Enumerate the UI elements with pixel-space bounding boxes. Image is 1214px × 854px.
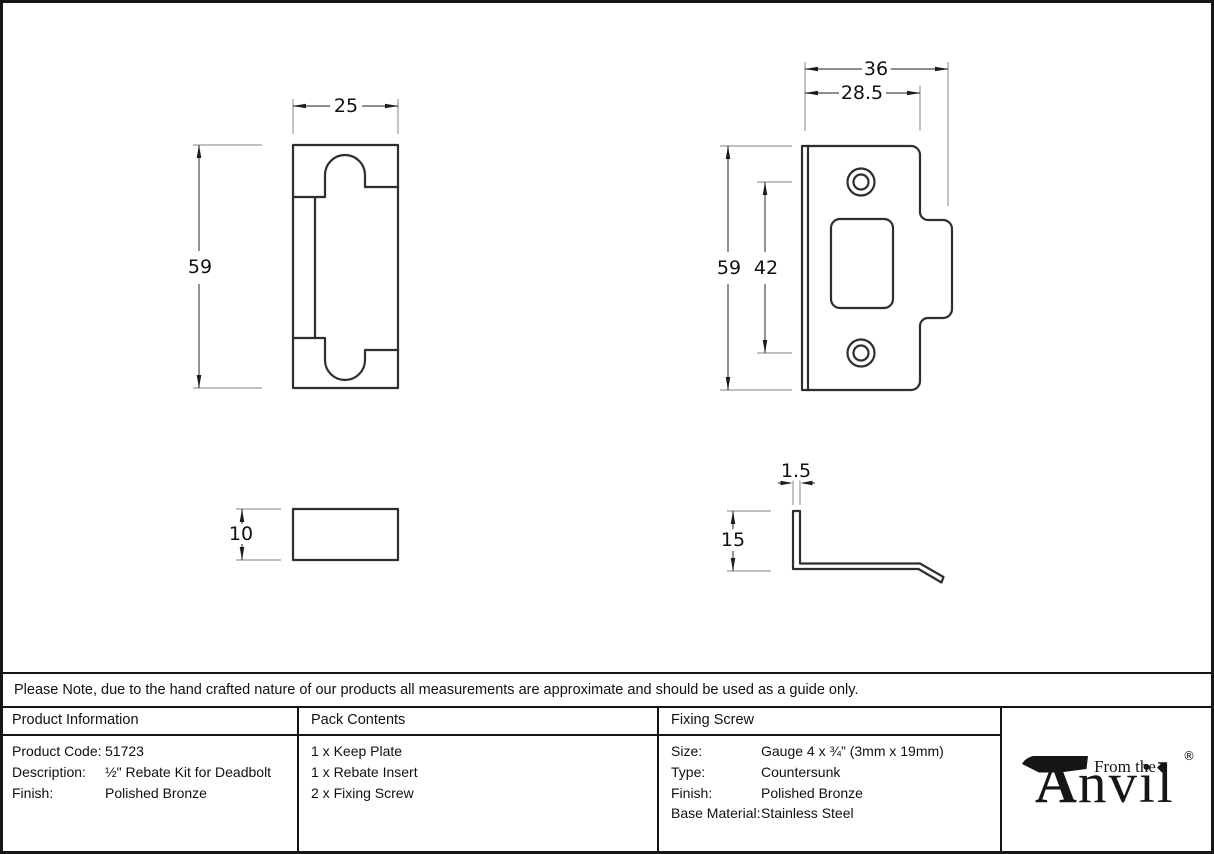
row-label: Description: xyxy=(12,762,105,783)
screw-hole-top-outer xyxy=(848,169,875,196)
arrowhead xyxy=(731,558,736,571)
spec-sheet-page: 25 59 xyxy=(0,0,1214,854)
row-value: Stainless Steel xyxy=(761,803,854,824)
dim-label-lip-thickness: 1.5 xyxy=(781,460,811,482)
product-information-body: Product Code: 51723 Description: ½" Reba… xyxy=(0,736,297,803)
insert-side-outline xyxy=(293,509,398,560)
dimension-plate-width: 28.5 xyxy=(805,82,920,131)
table-row: Description: ½" Rebate Kit for Deadbolt xyxy=(12,762,291,783)
product-information-header: Product Information xyxy=(0,708,297,736)
arrowhead xyxy=(726,146,731,159)
row-label: Finish: xyxy=(671,783,761,804)
dim-label-screw-spacing: 42 xyxy=(754,257,778,279)
dim-label-plate-height: 59 xyxy=(717,257,741,279)
arrowhead xyxy=(240,509,245,522)
dimension-lip-height: 15 xyxy=(721,511,771,571)
from-the-anvil-logo: A nvil From the ◆ ® xyxy=(1002,708,1214,853)
row-label: Base Material: xyxy=(671,803,761,824)
row-label: Type: xyxy=(671,762,761,783)
table-row: Size: Gauge 4 x ¾” (3mm x 19mm) xyxy=(671,741,994,762)
arrowhead xyxy=(197,145,202,158)
pack-contents-body: 1 x Keep Plate 1 x Rebate Insert 2 x Fix… xyxy=(299,736,657,803)
dimension-screw-spacing: 42 xyxy=(754,182,792,353)
technical-drawing: 25 59 xyxy=(0,0,1214,672)
dimension-insert-height: 59 xyxy=(188,145,262,388)
arrowhead xyxy=(293,104,306,109)
arrowhead xyxy=(805,67,818,72)
row-label: Size: xyxy=(671,741,761,762)
note-text: Please Note, due to the hand crafted nat… xyxy=(14,682,858,698)
table-row: Base Material: Stainless Steel xyxy=(671,803,994,824)
info-table: Product Information Product Code: 51723 … xyxy=(0,706,1214,854)
keep-plate-outline xyxy=(802,146,952,390)
table-row: Finish: Polished Bronze xyxy=(12,783,291,804)
registered-trademark-icon: ® xyxy=(1183,749,1195,763)
arrowhead xyxy=(935,67,948,72)
dim-label-plate-overall-width: 36 xyxy=(864,58,888,80)
dim-label-insert-thickness: 10 xyxy=(229,523,253,545)
arrowhead xyxy=(385,104,398,109)
logo-tagline: From the xyxy=(1094,757,1156,776)
product-information-column: Product Information Product Code: 51723 … xyxy=(0,708,297,854)
arrowhead xyxy=(763,182,768,195)
dim-label-insert-height: 59 xyxy=(188,256,212,278)
list-item: 1 x Keep Plate xyxy=(311,741,651,762)
keep-plate-side-view: 1.5 15 xyxy=(721,460,944,583)
dim-label-lip-height: 15 xyxy=(721,529,745,551)
insert-front-view: 25 59 xyxy=(188,95,398,388)
arrowhead xyxy=(726,377,731,390)
table-row: Product Code: 51723 xyxy=(12,741,291,762)
arrowhead xyxy=(805,91,818,96)
dim-label-plate-width: 28.5 xyxy=(841,82,883,104)
dimension-lip-thickness: 1.5 xyxy=(778,460,815,505)
row-value: Countersunk xyxy=(761,762,840,783)
row-label: Finish: xyxy=(12,783,105,804)
screw-hole-bottom-inner xyxy=(854,346,869,361)
arrowhead xyxy=(240,547,245,560)
screw-hole-top-inner xyxy=(854,175,869,190)
dim-label-insert-width: 25 xyxy=(334,95,358,117)
fixing-screw-body: Size: Gauge 4 x ¾” (3mm x 19mm) Type: Co… xyxy=(659,736,1000,824)
table-row: Finish: Polished Bronze xyxy=(671,783,994,804)
dimension-insert-width: 25 xyxy=(293,95,398,134)
bolt-cutout xyxy=(831,219,893,308)
table-row: Type: Countersunk xyxy=(671,762,994,783)
insert-side-view: 10 xyxy=(229,509,398,560)
insert-front-outline xyxy=(293,145,398,388)
pack-contents-header: Pack Contents xyxy=(299,708,657,736)
list-item: 2 x Fixing Screw xyxy=(311,783,651,804)
diamond-icon: ◆ xyxy=(1157,760,1167,775)
arrowhead xyxy=(763,340,768,353)
row-value: Polished Bronze xyxy=(105,783,207,804)
note-bar: Please Note, due to the hand crafted nat… xyxy=(0,672,1214,706)
row-label: Product Code: xyxy=(12,741,105,762)
insert-front-cutouts xyxy=(293,155,398,380)
screw-hole-bottom-outer xyxy=(848,340,875,367)
keep-plate-profile-outline xyxy=(793,511,944,583)
arrowhead xyxy=(907,91,920,96)
arrowhead xyxy=(731,511,736,524)
row-value: Gauge 4 x ¾” (3mm x 19mm) xyxy=(761,741,944,762)
keep-plate-front-view: 36 28.5 59 xyxy=(717,58,952,390)
fixing-screw-column: Fixing Screw Size: Gauge 4 x ¾” (3mm x 1… xyxy=(657,708,1000,854)
row-value: 51723 xyxy=(105,741,144,762)
row-value: Polished Bronze xyxy=(761,783,863,804)
fixing-screw-header: Fixing Screw xyxy=(659,708,1000,736)
brand-logo-cell: A nvil From the ◆ ® xyxy=(1000,708,1214,854)
logo-brand-initial: A xyxy=(1035,750,1077,815)
list-item: 1 x Rebate Insert xyxy=(311,762,651,783)
arrowhead xyxy=(197,375,202,388)
row-value: ½" Rebate Kit for Deadbolt xyxy=(105,762,271,783)
dimension-plate-overall-width: 36 xyxy=(805,58,948,206)
pack-contents-column: Pack Contents 1 x Keep Plate 1 x Rebate … xyxy=(297,708,657,854)
dimension-insert-thickness: 10 xyxy=(229,509,281,560)
